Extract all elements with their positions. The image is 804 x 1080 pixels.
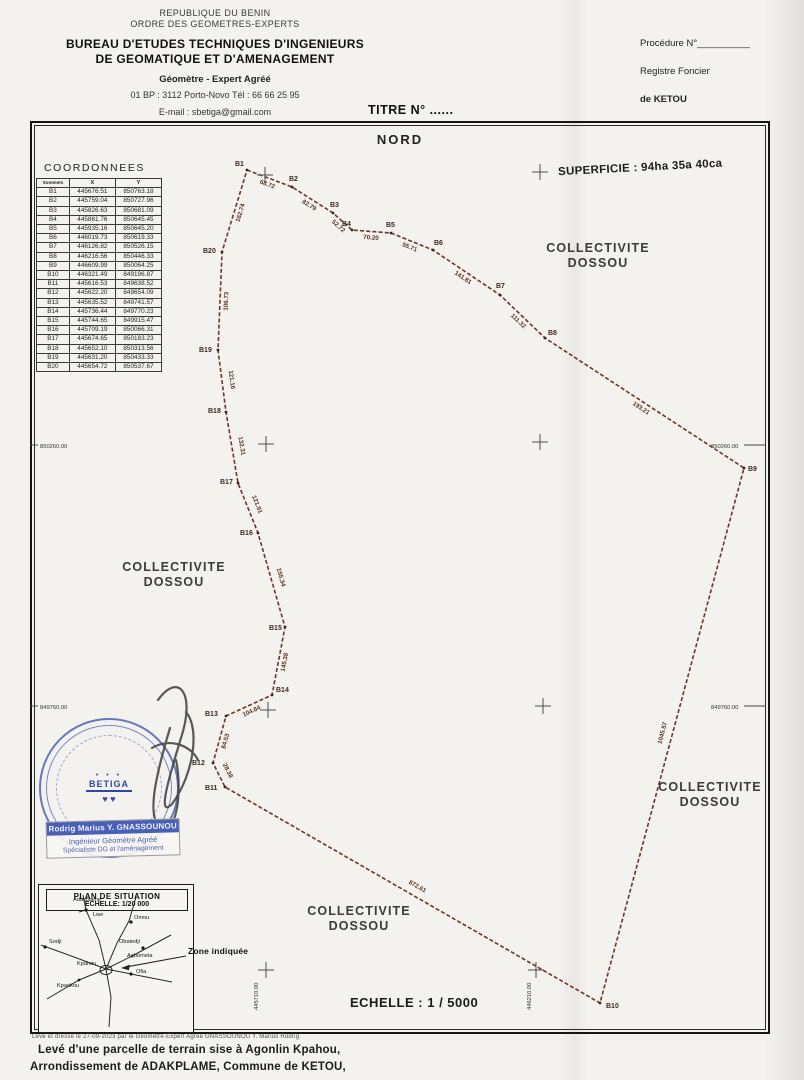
table-row: B18445652.10850313.56 bbox=[37, 344, 162, 353]
stamp-heart-icon: ♥ ♥ bbox=[102, 794, 115, 804]
registry-block: Procédure N°__________ Registre Foncier … bbox=[640, 30, 800, 114]
letterhead-bureau-1: BUREAU D'ETUDES TECHNIQUES D'INGENIEURS bbox=[35, 37, 395, 52]
table-row: B15445744.65849915.47 bbox=[37, 317, 162, 326]
table-row: B8446216.56850446.33 bbox=[37, 252, 162, 261]
table-cell: B2 bbox=[37, 197, 70, 206]
table-cell: 445616.53 bbox=[69, 280, 115, 289]
table-cell: B6 bbox=[37, 234, 70, 243]
village-label: Kpankou bbox=[57, 983, 79, 989]
coordinates-table: SommetsXY B1445676.51850763.18B2445759.0… bbox=[36, 178, 162, 372]
village-label: Lwe bbox=[93, 912, 103, 918]
table-row: B14445736.44849770.23 bbox=[37, 307, 162, 316]
table-cell: B10 bbox=[37, 271, 70, 280]
table-cell: 850064.25 bbox=[115, 261, 161, 270]
table-cell: 850537.67 bbox=[115, 363, 161, 372]
table-cell: B1 bbox=[37, 188, 70, 197]
table-row: B5445935.16850645.20 bbox=[37, 225, 162, 234]
table-row: B1445676.51850763.18 bbox=[37, 188, 162, 197]
registre-foncier: Registre Foncier bbox=[640, 58, 800, 86]
stamp-dots: • • • bbox=[96, 772, 122, 779]
table-cell: B5 bbox=[37, 225, 70, 234]
letterhead-address: 01 BP : 3112 Porto-Novo Tél : 66 66 25 9… bbox=[35, 90, 395, 101]
coordinates-title: COORDONNEES bbox=[44, 162, 166, 174]
zone-indiquee-label: Zone indiquée bbox=[188, 946, 248, 956]
table-row: B16445709.19850066.31 bbox=[37, 326, 162, 335]
table-cell: 446126.82 bbox=[69, 243, 115, 252]
table-cell: 849196.87 bbox=[115, 271, 161, 280]
table-cell: 850446.33 bbox=[115, 252, 161, 261]
table-cell: 850727.96 bbox=[115, 197, 161, 206]
coordinates-table-body: B1445676.51850763.18B2445759.04850727.96… bbox=[37, 188, 162, 372]
table-cell: 849741.57 bbox=[115, 298, 161, 307]
table-cell: 849654.09 bbox=[115, 289, 161, 298]
table-row: B20445654.72850537.67 bbox=[37, 363, 162, 372]
situation-scale: ECHELLE: 1/20 000 bbox=[47, 901, 187, 908]
table-cell: B11 bbox=[37, 280, 70, 289]
letterhead: REPUBLIQUE DU BENIN ORDRE DES GEOMETRES-… bbox=[35, 8, 395, 118]
scanned-survey-plan: REPUBLIQUE DU BENIN ORDRE DES GEOMETRES-… bbox=[0, 0, 804, 1080]
table-cell: 445826.63 bbox=[69, 206, 115, 215]
table-row: B17445674.65850183.23 bbox=[37, 335, 162, 344]
table-header-cell: Sommets bbox=[37, 179, 70, 188]
village-label: Kpahou bbox=[77, 961, 96, 967]
table-cell: 850645.45 bbox=[115, 215, 161, 224]
table-row: B19445631.20850433.33 bbox=[37, 353, 162, 362]
footer-survey-note: Levé et dressé le 27-09-2023 par le Géom… bbox=[32, 1034, 299, 1040]
table-header-row: SommetsXY bbox=[37, 179, 162, 188]
north-label: NORD bbox=[330, 132, 470, 147]
table-cell: 850433.33 bbox=[115, 353, 161, 362]
table-cell: 445654.72 bbox=[69, 363, 115, 372]
table-cell: 445935.16 bbox=[69, 225, 115, 234]
village-label: Ofia bbox=[136, 969, 147, 975]
table-cell: B20 bbox=[37, 363, 70, 372]
letterhead-email: E-mail : sbetiga@gmail.com bbox=[35, 107, 395, 118]
surveyor-role-2: Spécialiste DG et l'aménagement bbox=[47, 844, 179, 857]
table-cell: 445635.52 bbox=[69, 298, 115, 307]
table-cell: B9 bbox=[37, 261, 70, 270]
coordinates-panel: COORDONNEES SommetsXY B1445676.51850763.… bbox=[36, 162, 166, 372]
scale-label: ECHELLE : 1 / 5000 bbox=[350, 995, 478, 1010]
table-cell: 446216.56 bbox=[69, 252, 115, 261]
table-cell: 850066.31 bbox=[115, 326, 161, 335]
letterhead-order: ORDRE DES GEOMETRES-EXPERTS bbox=[35, 19, 395, 30]
table-cell: 850763.18 bbox=[115, 188, 161, 197]
collectivite-label: COLLECTIVITEDOSSOU bbox=[289, 904, 429, 934]
table-row: B13445635.52849741.57 bbox=[37, 298, 162, 307]
collectivite-label: COLLECTIVITEDOSSOU bbox=[104, 560, 244, 590]
registre-commune: de KETOU bbox=[640, 86, 800, 114]
table-cell: 849770.23 bbox=[115, 307, 161, 316]
collectivite-label: COLLECTIVITEDOSSOU bbox=[640, 780, 780, 810]
collectivite-label: COLLECTIVITEDOSSOU bbox=[528, 241, 668, 271]
footer-parcel-line: Levé d'une parcelle de terrain sise à Ag… bbox=[38, 1044, 340, 1056]
table-cell: 445652.10 bbox=[69, 344, 115, 353]
table-cell: 446019.73 bbox=[69, 234, 115, 243]
village-label: Obatedji bbox=[119, 939, 140, 945]
table-cell: 445736.44 bbox=[69, 307, 115, 316]
table-cell: 445674.65 bbox=[69, 335, 115, 344]
situation-header: PLAN DE SITUATION ECHELLE: 1/20 000 bbox=[46, 889, 188, 911]
village-label: Agbometa bbox=[127, 953, 153, 959]
procedure-number: Procédure N°__________ bbox=[640, 30, 800, 58]
table-row: B11445616.53849638.52 bbox=[37, 280, 162, 289]
village-label: Omou bbox=[134, 915, 149, 921]
table-cell: 850313.56 bbox=[115, 344, 161, 353]
table-cell: 445709.19 bbox=[69, 326, 115, 335]
letterhead-country: REPUBLIQUE DU BENIN bbox=[35, 8, 395, 19]
situation-title: PLAN DE SITUATION bbox=[47, 892, 187, 901]
table-cell: 849638.52 bbox=[115, 280, 161, 289]
table-cell: B14 bbox=[37, 307, 70, 316]
titre-number: TITRE N° ...... bbox=[368, 103, 453, 117]
table-cell: B19 bbox=[37, 353, 70, 362]
table-row: B9446609.99850064.25 bbox=[37, 261, 162, 270]
situation-inset: PLAN DE SITUATION ECHELLE: 1/20 000 Adak… bbox=[38, 884, 194, 1033]
table-cell: 850526.15 bbox=[115, 243, 161, 252]
table-row: B2445759.04850727.96 bbox=[37, 197, 162, 206]
table-cell: B4 bbox=[37, 215, 70, 224]
table-row: B4445861.76850645.45 bbox=[37, 215, 162, 224]
table-cell: 850619.33 bbox=[115, 234, 161, 243]
table-cell: B15 bbox=[37, 317, 70, 326]
table-cell: 445744.65 bbox=[69, 317, 115, 326]
table-cell: B18 bbox=[37, 344, 70, 353]
table-cell: 849915.47 bbox=[115, 317, 161, 326]
table-cell: 445631.20 bbox=[69, 353, 115, 362]
table-row: B6446019.73850619.33 bbox=[37, 234, 162, 243]
table-row: B7446126.82850526.15 bbox=[37, 243, 162, 252]
table-cell: 446609.99 bbox=[69, 261, 115, 270]
table-cell: B16 bbox=[37, 326, 70, 335]
table-header-cell: Y bbox=[115, 179, 161, 188]
situation-village-dots bbox=[43, 908, 144, 981]
zone-circle bbox=[100, 965, 112, 974]
table-row: B12445622.20849654.09 bbox=[37, 289, 162, 298]
table-cell: B7 bbox=[37, 243, 70, 252]
table-row: B10446321.49849196.87 bbox=[37, 271, 162, 280]
table-cell: 445676.51 bbox=[69, 188, 115, 197]
table-cell: 445622.20 bbox=[69, 289, 115, 298]
situation-roads bbox=[41, 895, 172, 1027]
table-cell: B17 bbox=[37, 335, 70, 344]
table-cell: B3 bbox=[37, 206, 70, 215]
table-cell: B13 bbox=[37, 298, 70, 307]
letterhead-role: Géomètre - Expert Agréé bbox=[35, 74, 395, 86]
table-cell: 445759.04 bbox=[69, 197, 115, 206]
village-label: Sodji bbox=[49, 939, 61, 945]
table-cell: B8 bbox=[37, 252, 70, 261]
table-cell: 445861.76 bbox=[69, 215, 115, 224]
table-row: B3445826.63850681.09 bbox=[37, 206, 162, 215]
table-header-cell: X bbox=[69, 179, 115, 188]
stamp-logo-text: BETIGA bbox=[86, 779, 132, 792]
scan-edge-shade bbox=[764, 0, 804, 1080]
table-cell: B12 bbox=[37, 289, 70, 298]
table-cell: 850681.09 bbox=[115, 206, 161, 215]
table-cell: 850183.23 bbox=[115, 335, 161, 344]
surveyor-name-box: Rodrig Marius Y. GNASSOUNOU Ingénieur Gé… bbox=[46, 818, 181, 858]
table-cell: 850645.20 bbox=[115, 225, 161, 234]
footer-commune-line: Arrondissement de ADAKPLAME, Commune de … bbox=[30, 1061, 346, 1073]
table-cell: 446321.49 bbox=[69, 271, 115, 280]
letterhead-bureau-2: DE GEOMATIQUE ET D'AMENAGEMENT bbox=[35, 52, 395, 67]
